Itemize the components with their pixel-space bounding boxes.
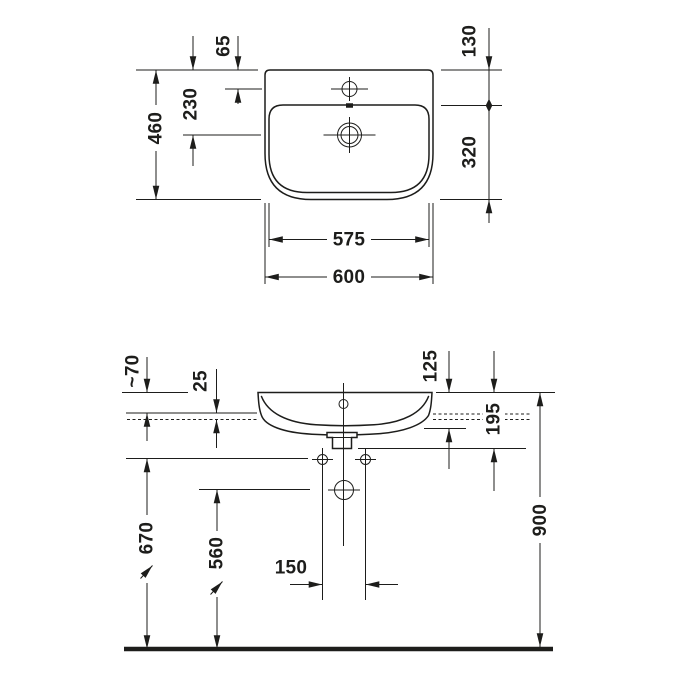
drawing-canvas: 460 65 230 130 320 575 [0,0,700,700]
drain-crosshair [324,117,376,153]
dim-label-65: 65 [214,35,235,57]
dimension-560: 560 [206,490,228,650]
dim-label-130: 130 [460,25,481,58]
dim-label-195: 195 [484,403,505,436]
tap-hole-crosshair [331,77,368,101]
dim-label-320: 320 [460,136,481,169]
fixing-hole-crosshair [355,448,376,471]
dim-label-600: 600 [333,267,366,288]
dimension-575: 575 [269,230,429,251]
dim-label-560: 560 [207,537,228,570]
dimension-25: 25 [191,369,217,448]
dim-label-25: 25 [191,370,212,392]
dimension-150: 150 [275,558,398,585]
dimension-600: 600 [265,267,433,288]
dimension-900: 900 [529,393,552,648]
arrow-diamond [486,99,493,112]
dim-label-70: ~70 [123,354,144,387]
dim-label-460: 460 [146,112,167,145]
dim-label-230: 230 [181,88,202,121]
basin-profile-outline [258,393,432,435]
dim-label-150: 150 [275,558,308,579]
dimension-195: 195 [483,351,505,491]
front-view: ~70 25 125 195 670 [122,350,555,649]
fixing-hole-crosshair [312,448,333,471]
washbasin-technical-drawing: 460 65 230 130 320 575 [0,0,700,700]
dimension-230: 230 [181,36,202,166]
dimension-460: 460 [145,70,167,200]
dim-label-900: 900 [530,504,551,537]
dim-label-670: 670 [137,522,158,555]
dim-label-125: 125 [421,350,442,383]
dimension-670: 670 [136,459,158,650]
dimension-70: ~70 [123,354,148,441]
dimension-130-320: 130 320 [460,25,493,223]
dim-label-575: 575 [333,230,366,251]
drain-tailpiece [327,433,357,449]
top-view: 460 65 230 130 320 575 [136,25,502,288]
